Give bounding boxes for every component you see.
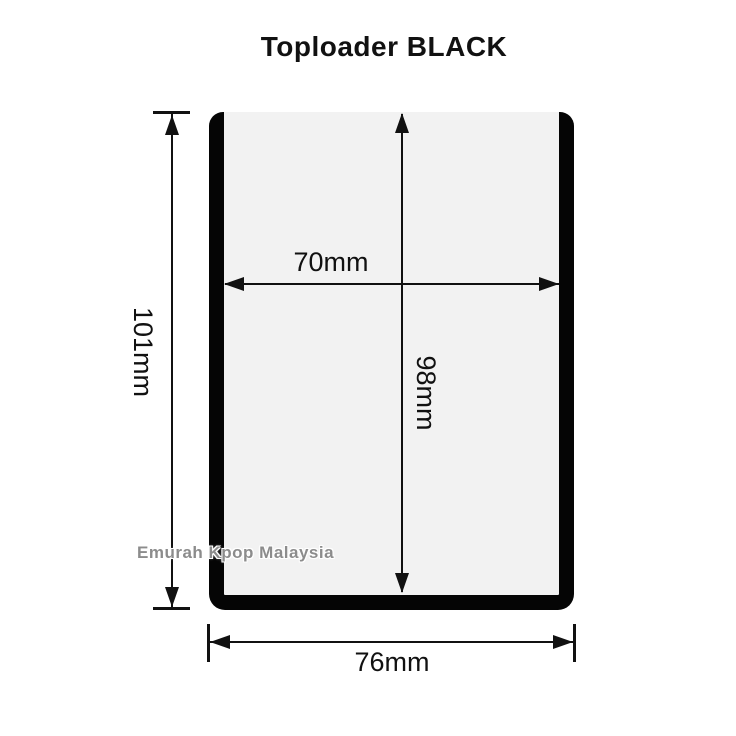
arrowhead-right-icon (553, 635, 573, 649)
overall-height-label: 101mm (128, 307, 158, 397)
arrowhead-down-icon (395, 573, 409, 593)
extension-tick-right (573, 624, 576, 662)
dimension-line-horizontal (210, 641, 574, 643)
arrowhead-left-icon (224, 277, 244, 291)
arrowhead-up-icon (165, 115, 179, 135)
product-title: Toploader BLACK (16, 31, 736, 63)
arrowhead-right-icon (539, 277, 559, 291)
dimension-line-vertical (171, 114, 173, 608)
product-dimension-diagram: Toploader BLACK 101mm 70mm 98mm 76mm Emu… (0, 0, 736, 736)
inner-width-label: 70mm (256, 247, 406, 278)
arrowhead-down-icon (165, 587, 179, 607)
inner-height-label: 98mm (411, 348, 441, 438)
dimension-line-horizontal (225, 283, 559, 285)
arrowhead-up-icon (395, 113, 409, 133)
toploader-body (209, 112, 574, 610)
dimension-line-vertical (401, 114, 403, 592)
seller-watermark: Emurah Kpop Malaysia (137, 543, 334, 563)
overall-width-label: 76mm (317, 647, 467, 678)
arrowhead-left-icon (210, 635, 230, 649)
